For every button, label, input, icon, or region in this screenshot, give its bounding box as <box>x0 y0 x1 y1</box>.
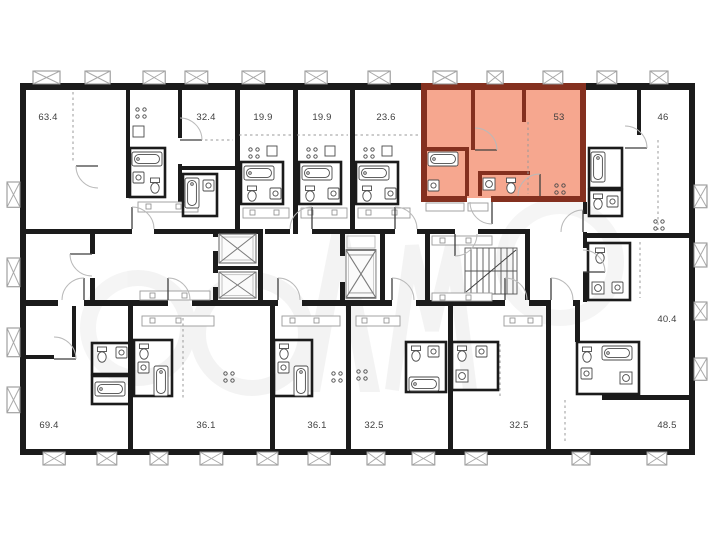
apartment-area-label: 32.4 <box>196 112 215 123</box>
bathtub-icon <box>591 152 605 182</box>
window-icon <box>368 71 390 84</box>
window-icon <box>543 71 563 84</box>
sink-icon <box>385 188 396 199</box>
toilet-icon <box>363 186 372 201</box>
washer-icon <box>456 370 468 382</box>
window-icon <box>367 452 385 465</box>
window-icon <box>694 358 707 380</box>
apartment-area-label: 19.9 <box>312 112 331 123</box>
windows-top <box>33 71 668 84</box>
sink-icon <box>133 126 144 137</box>
window-icon <box>33 71 60 84</box>
window-icon <box>465 452 487 465</box>
elevator-icon <box>219 272 256 298</box>
apartment-area-label: 32.5 <box>509 420 528 431</box>
window-icon <box>43 452 65 465</box>
stove-icon <box>654 220 664 230</box>
window-icon <box>150 452 168 465</box>
window-icon <box>647 452 667 465</box>
stove-icon <box>136 108 146 118</box>
bathtub-icon <box>428 152 458 166</box>
bathtub-icon <box>185 178 199 208</box>
sink-icon <box>328 188 339 199</box>
bathtub-icon <box>409 377 439 391</box>
apartment-53-highlight <box>424 88 583 198</box>
window-icon <box>85 71 110 84</box>
door-arc-icon <box>62 278 84 300</box>
window-icon <box>694 185 707 208</box>
apartment-area-label: 36.1 <box>307 420 326 431</box>
elevator-icon <box>346 250 376 298</box>
toilet-icon <box>306 186 315 201</box>
stove-icon <box>249 148 259 158</box>
sink-icon <box>428 346 439 357</box>
window-icon <box>487 71 503 84</box>
washer-icon <box>620 372 632 384</box>
sink-icon <box>612 282 623 293</box>
toilet-icon <box>151 178 160 193</box>
window-icon <box>257 452 278 465</box>
bathtub-icon <box>294 366 308 396</box>
sink-icon <box>581 368 592 379</box>
window-icon <box>97 452 117 465</box>
stove-icon <box>364 148 374 158</box>
sink-icon <box>133 172 144 183</box>
washer-icon <box>592 282 604 294</box>
toilet-icon <box>98 347 107 362</box>
bathtub-icon <box>154 366 168 396</box>
window-icon <box>433 71 457 84</box>
window-icon <box>650 71 668 84</box>
toilet-icon <box>458 346 467 361</box>
window-icon <box>308 452 330 465</box>
bathtub-icon <box>302 166 332 180</box>
window-icon <box>200 452 223 465</box>
toilet-icon <box>140 344 149 359</box>
window-icon <box>412 452 435 465</box>
window-icon <box>694 243 707 267</box>
washer-icon <box>483 178 495 190</box>
apartment-area-label: 69.4 <box>39 420 58 431</box>
sink-icon <box>428 180 439 191</box>
toilet-icon <box>594 194 603 209</box>
apartment-area-label: 40.4 <box>657 314 676 325</box>
sink-icon <box>607 196 618 207</box>
window-icon <box>305 71 327 84</box>
apartment-area-label: 46 <box>658 112 669 123</box>
window-icon <box>143 71 165 84</box>
floor-plan-svg: 63.4 32.4 19.9 19.9 23.6 53 46 40.4 69.4… <box>0 0 714 540</box>
door-arc-icon <box>625 126 647 148</box>
stove-icon <box>307 148 317 158</box>
apartment-area-label: 63.4 <box>38 112 57 123</box>
door-arc-icon <box>76 166 98 188</box>
floor-plan-image[interactable]: 63.4 32.4 19.9 19.9 23.6 53 46 40.4 69.4… <box>0 0 714 540</box>
sink-icon <box>278 362 289 373</box>
bathtub-icon <box>359 166 389 180</box>
sink-icon <box>116 347 127 358</box>
toilet-icon <box>412 346 421 361</box>
window-icon <box>597 71 617 84</box>
sink-icon <box>270 188 281 199</box>
sink-icon <box>476 346 487 357</box>
toilet-icon <box>583 347 592 362</box>
window-icon <box>7 387 20 413</box>
apartment-area-label: 23.6 <box>376 112 395 123</box>
toilet-icon <box>248 186 257 201</box>
toilet-icon <box>596 248 605 263</box>
window-icon <box>185 71 208 84</box>
sink-icon <box>203 180 214 191</box>
window-icon <box>7 328 20 357</box>
apartment-area-label: 36.1 <box>196 420 215 431</box>
elevator-icon <box>219 234 256 263</box>
elevator-core-2 <box>340 229 385 306</box>
apartment-area-label: 48.5 <box>657 420 676 431</box>
stove-icon <box>332 372 342 382</box>
window-icon <box>242 71 265 84</box>
window-icon <box>7 182 20 207</box>
elevator-core <box>213 229 263 306</box>
sink-icon <box>138 362 149 373</box>
window-icon <box>7 258 20 287</box>
apartment-area-label: 19.9 <box>253 112 272 123</box>
apartment-area-label: 32.5 <box>364 420 383 431</box>
window-icon <box>572 452 590 465</box>
door-arc-icon <box>70 254 92 276</box>
door-arc-icon <box>551 278 573 300</box>
bathtub-icon <box>244 166 274 180</box>
window-icon <box>694 302 707 320</box>
toilet-icon <box>280 344 289 359</box>
apartment-area-label-highlighted: 53 <box>554 112 565 123</box>
toilet-icon <box>507 178 516 193</box>
bathtub-icon <box>132 152 162 166</box>
bathtub-icon <box>95 382 125 396</box>
bathtub-icon <box>602 346 632 360</box>
